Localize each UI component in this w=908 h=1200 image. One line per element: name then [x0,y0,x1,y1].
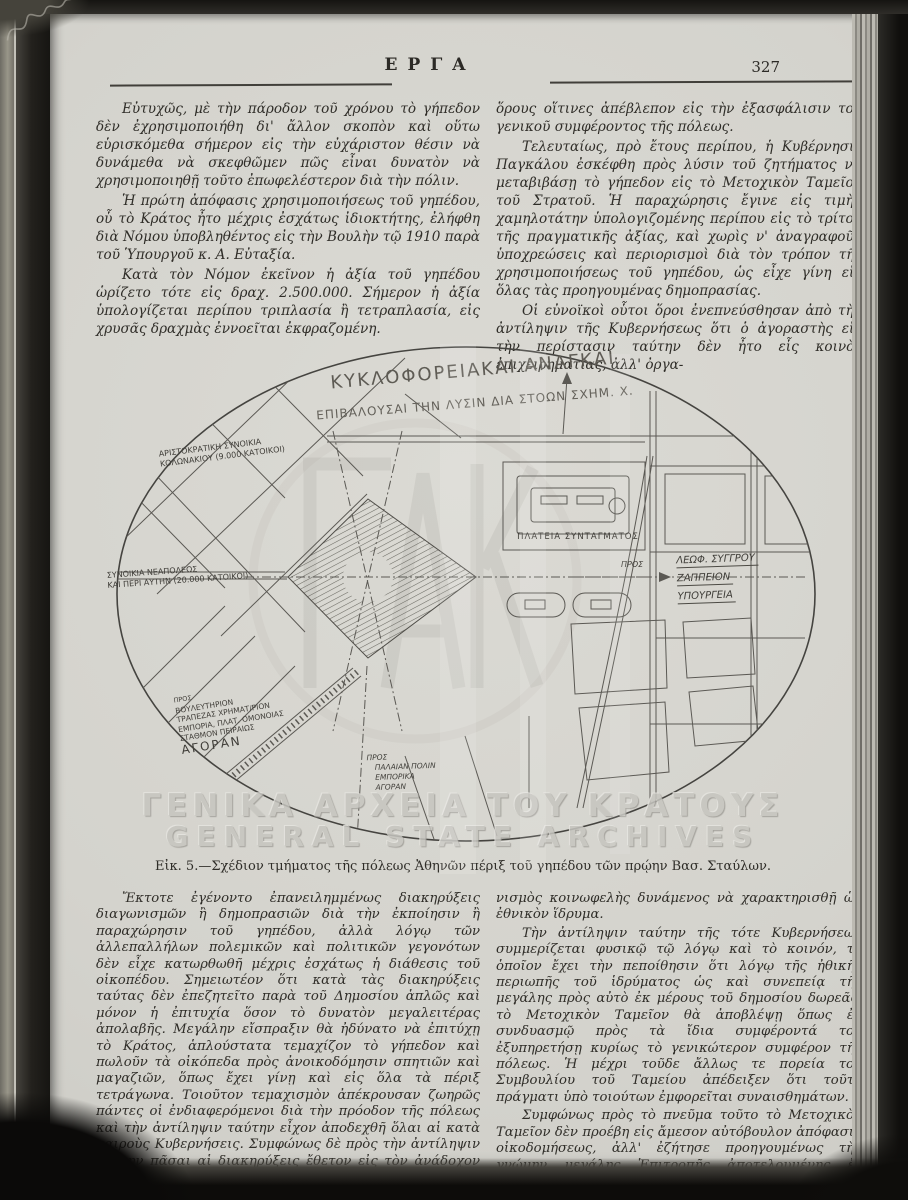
map-label-east-destinations: ΛΕΩΦ. ΣΥΓΓΡΟΥ ΖΑΠΠΕΙΟΝ ΥΠΟΥΡΓΕΙΑ [676,553,759,610]
label-line: ΛΕΩΦ. ΣΥΓΓΡΟΥ [676,553,758,569]
scan-background-right [878,0,908,1200]
scanned-book-page: ΕΡΓΑ 327 Εὐτυχῶς, μὲ τὴν πάροδον τοῦ χρό… [0,0,908,1200]
map-label-south-destinations: ΠΡΟΣ ΠΑΛΑΙΑΝ ΠΟΛΙΝ ΕΜΠΟΡΙΚΑ ΑΓΟΡΑΝ [366,751,436,793]
top-text-columns: Εὐτυχῶς, μὲ τὴν πάροδον τοῦ χρόνου τὸ γή… [96,100,862,376]
label-line: ΥΠΟΥΡΓΕΙΑ [677,589,736,604]
paragraph: Ἡ πρώτη ἀπόφασις χρησιμοποιήσεως τοῦ γηπ… [96,192,480,264]
scan-streak [440,344,476,874]
top-left-column: Εὐτυχῶς, μὲ τὴν πάροδον τοῦ χρόνου τὸ γή… [96,100,480,376]
journal-title: ΕΡΓΑ [340,55,520,75]
paragraph: Τελευταίως, πρὸ ἔτους περίπου, ἡ Κυβέρνη… [496,138,862,300]
top-right-column: ὅρους οἵτινες ἀπέβλεπον εἰς τὴν ἐξασφάλι… [496,100,862,376]
header-rule-left [110,83,392,86]
label-line: ΖΑΠΠΕΙΟΝ [677,571,734,586]
paragraph: Κατὰ τὸν Νόμον ἐκεῖνον ἡ ἀξία τοῦ γηπέδο… [96,266,480,338]
scan-streak [520,349,546,869]
paragraph: νισμὸς κοινωφελὴς δυνάμενος νὰ χαρακτηρι… [496,891,862,924]
scan-background-top [0,0,908,14]
corner-shadow-bottom-left [0,970,330,1200]
page-stack-edges [852,4,880,1184]
header-rule-right [550,80,862,83]
corner-shadow-bottom-right [698,1050,908,1200]
page-number: 327 [710,58,780,76]
paragraph: Εὐτυχῶς, μὲ τὴν πάροδον τοῦ χρόνου τὸ γή… [96,100,480,190]
paragraph: ὅρους οἵτινες ἀπέβλεπον εἰς τὴν ἐξασφάλι… [496,100,862,136]
scan-streak [610,354,630,854]
